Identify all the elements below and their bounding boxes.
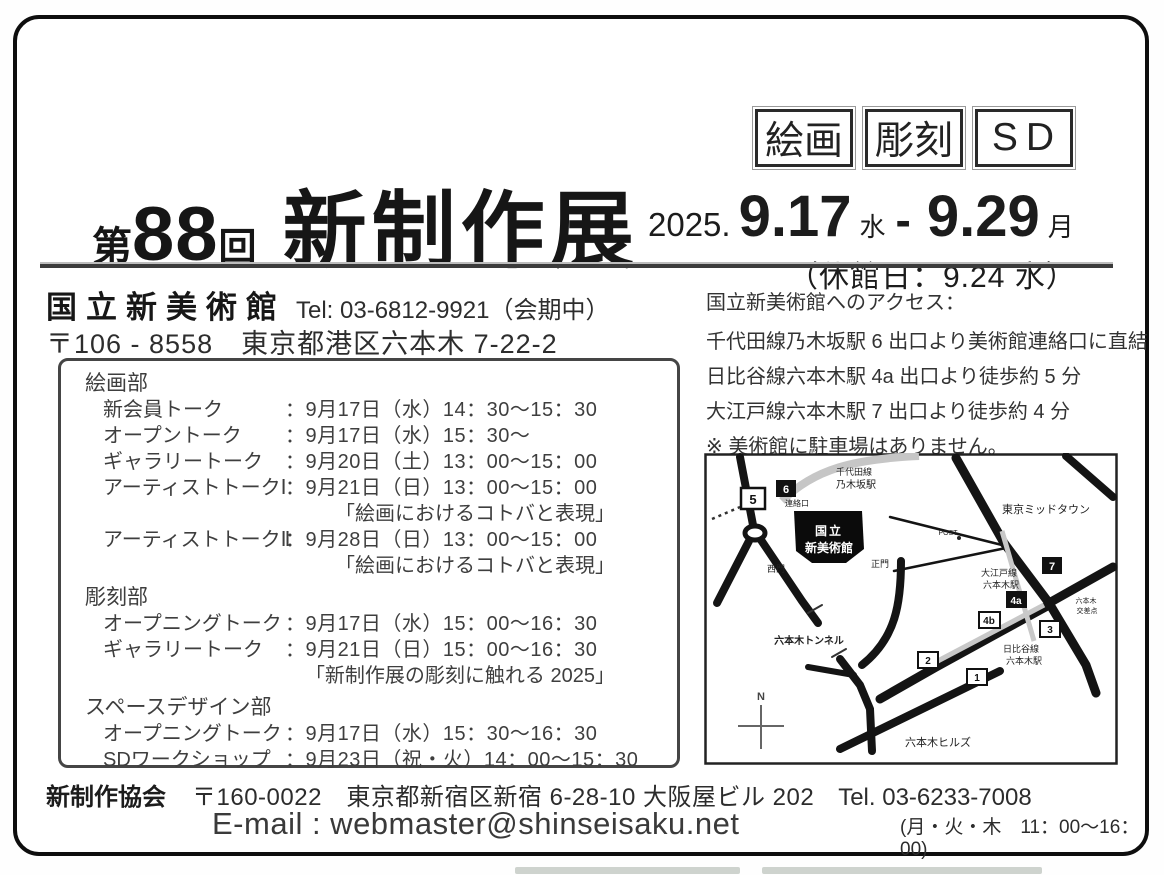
exit-6: 6 (783, 484, 789, 496)
date-start: 9.17 (739, 183, 852, 250)
museum-label-line2: 新美術館 (805, 540, 853, 555)
area-map: 国立 新美術館 5 6 7 4a 4b 3 2 1 千代田線 乃木坂駅 連絡口 … (704, 453, 1118, 765)
north-label: N (757, 691, 765, 703)
schedule-row: オープニングトーク：9月17日（水）15：00～16：30 (103, 611, 663, 637)
title-kai: 回 (219, 216, 257, 271)
badge-sculpture: 彫刻 (865, 109, 963, 167)
event-schedule-box: 絵画部 新会員トーク：9月17日（水）14：30～15：30 オープントーク：9… (58, 358, 680, 768)
access-heading: 国立新美術館へのアクセス： (706, 286, 1118, 315)
badge-painting: 絵画 (755, 109, 853, 167)
main-gate-label: 正門 (871, 559, 889, 569)
exhibition-flyer: 絵画 彫刻 SD 第88回 新制作展 2025. 9.17 水 - 9.29 月… (0, 0, 1164, 875)
date-year: 2025. (648, 206, 731, 244)
post-dot (957, 536, 961, 540)
date-start-day: 水 (859, 207, 885, 244)
organizer-name: 新制作協会 (46, 777, 166, 812)
chiyoda-line-label: 千代田線 (836, 466, 872, 477)
badge-sd: SD (975, 109, 1073, 167)
connecting-exit-label: 連絡口 (785, 498, 809, 508)
midtown-label: 東京ミッドタウン (1002, 502, 1090, 516)
roppongi-hibiya-label: 六本木駅 (1006, 655, 1042, 666)
exit-1: 1 (974, 673, 980, 684)
west-gate-label: 西門 (767, 564, 785, 574)
crossing-label-line2: 交差点 (1077, 606, 1098, 615)
tunnel-label: 六本木トンネル (774, 634, 844, 647)
exit-5: 5 (749, 492, 756, 507)
section-heading-painting: 絵画部 (85, 370, 663, 397)
schedule-row: オープニングトーク：9月17日（水）15：30～16：30 (103, 721, 663, 747)
scan-artifact (762, 867, 1042, 874)
schedule-row: アーティストトークⅠ：9月21日（日）13：00～15：00 (103, 475, 663, 501)
exit-4a: 4a (1010, 596, 1022, 607)
access-line: 日比谷線六本木駅 4a 出口より徒歩約 5 分 (706, 360, 1118, 395)
schedule-note: 「絵画におけるコトバと表現」 (85, 501, 663, 527)
divider-rule (40, 264, 1113, 268)
exhibition-dates: 2025. 9.17 水 - 9.29 月 （休館日：9.24 水） (648, 183, 1084, 296)
schedule-note: 「新制作展の彫刻に触れる 2025」 (85, 663, 663, 689)
crossing-label-line1: 六本木 (1076, 596, 1097, 605)
date-end: 9.29 (927, 183, 1040, 250)
schedule-row: ギャラリートーク：9月20日（土）13：00～15：00 (103, 449, 663, 475)
exit-4b: 4b (983, 616, 995, 627)
oedo-line-label: 大江戸線 (981, 567, 1017, 578)
roundabout (745, 526, 765, 540)
venue-line: 国立新美術館 Tel: 03-6812-9921（会期中） (46, 282, 609, 327)
category-badges: 絵画 彫刻 SD (755, 109, 1073, 167)
venue-tel: Tel: 03-6812-9921（会期中） (296, 290, 609, 325)
access-info: 国立新美術館へのアクセス： 千代田線乃木坂駅 6 出口より美術館連絡口に直結 日… (706, 286, 1118, 465)
exit-3: 3 (1047, 625, 1053, 636)
hills-label: 六本木ヒルズ (905, 735, 971, 749)
access-line: 千代田線乃木坂駅 6 出口より美術館連絡口に直結 (706, 325, 1118, 360)
exit-7: 7 (1049, 561, 1055, 573)
schedule-note: 「絵画におけるコトバと表現」 (85, 553, 663, 579)
organizer-email: E-mail : webmaster@shinseisaku.net (212, 806, 739, 842)
scan-artifact (515, 867, 740, 874)
hibiya-line-label: 日比谷線 (1003, 643, 1039, 654)
schedule-row: ギャラリートーク：9月21日（日）15：00～16：30 (103, 637, 663, 663)
museum-label-line1: 国立 (815, 523, 843, 538)
section-heading-space-design: スペースデザイン部 (85, 694, 663, 721)
organizer-hours: (月・火・木 11：00～16：00) (900, 812, 1164, 861)
date-dash: - (896, 193, 911, 247)
post-label: POST (938, 530, 958, 537)
roppongi-oedo-label: 六本木駅 (983, 579, 1019, 590)
organizer-tel: Tel. 03-6233-7008 (838, 784, 1031, 812)
access-line: 大江戸線六本木駅 7 出口より徒歩約 4 分 (706, 395, 1118, 430)
date-end-day: 月 (1048, 207, 1074, 244)
schedule-row: オープントーク：9月17日（水）15：30～ (103, 423, 663, 449)
exit-2: 2 (925, 656, 931, 667)
section-heading-sculpture: 彫刻部 (85, 584, 663, 611)
date-range: 2025. 9.17 水 - 9.29 月 (648, 183, 1084, 250)
nogizaka-station-label: 乃木坂駅 (836, 479, 876, 491)
venue-name: 国立新美術館 (46, 282, 286, 327)
venue-address: 〒106 - 8558 東京都港区六本木 7-22-2 (46, 322, 558, 361)
schedule-row: SDワークショップ：9月23日（祝・火）14：00～15：30 (103, 747, 663, 773)
schedule-row: アーティストトークⅡ：9月28日（日）13：00～15：00 (103, 527, 663, 553)
schedule-row: 新会員トーク：9月17日（水）14：30～15：30 (103, 397, 663, 423)
